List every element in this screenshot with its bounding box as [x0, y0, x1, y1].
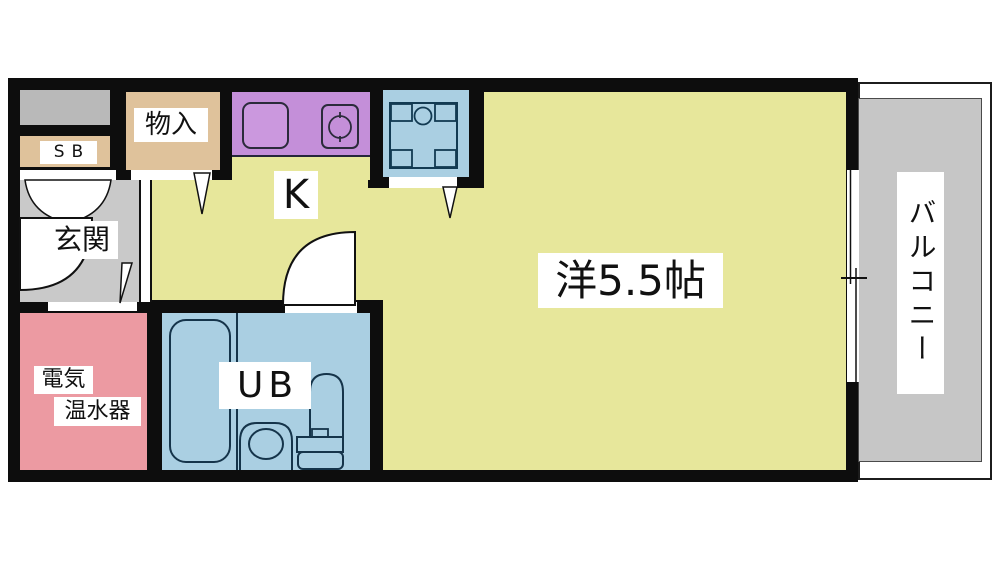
floor-plan: 玄関 SB 物入 K 洋5.5帖 UB 電気 温水器 バルコニー [0, 0, 1000, 562]
storage-doorway [131, 170, 212, 180]
meter-box [20, 90, 110, 125]
shoe-box-doorway [20, 170, 116, 180]
room-main-floor [368, 188, 484, 300]
kitchen-counter [232, 92, 370, 157]
label-storage: 物入 [134, 108, 208, 142]
label-entrance: 玄関 [46, 221, 118, 259]
label-kitchen: K [274, 171, 318, 219]
unit-bath-doorway [285, 302, 357, 313]
label-unit-bath: UB [219, 362, 311, 409]
washing-machine-pan [383, 90, 469, 177]
label-water-heater-line1: 電気 [34, 366, 93, 394]
room-main-floor [383, 300, 484, 470]
sliding-window [847, 170, 859, 382]
label-main-room: 洋5.5帖 [538, 253, 723, 308]
label-water-heater-line2: 温水器 [54, 397, 141, 426]
water-heater-doorway [48, 302, 137, 311]
washing-machine-doorway [389, 177, 457, 188]
label-balcony: バルコニー [897, 172, 944, 394]
entrance-kitchen-partition [139, 180, 152, 302]
room-kitchen-floor [152, 180, 368, 300]
label-shoe-box: SB [40, 141, 97, 164]
